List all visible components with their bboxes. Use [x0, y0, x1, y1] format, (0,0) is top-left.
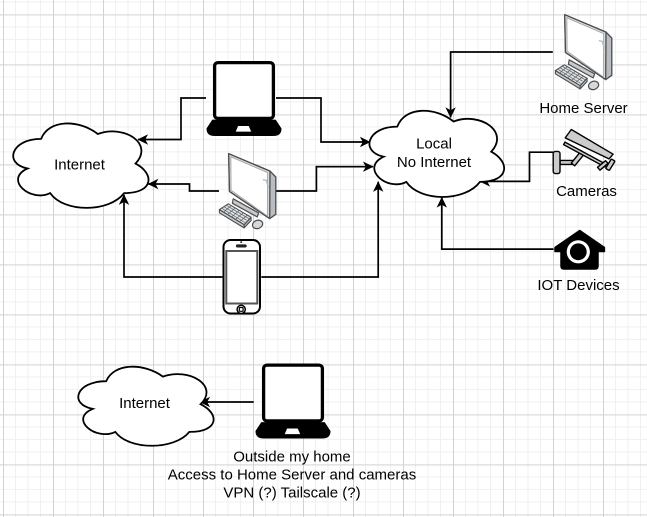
svg-text:Internet: Internet [54, 157, 106, 174]
svg-text:Internet: Internet [119, 395, 171, 412]
svg-text:IOT Devices: IOT Devices [537, 277, 619, 294]
svg-text:Local: Local [416, 136, 452, 153]
svg-text:Cameras: Cameras [556, 183, 617, 200]
svg-text:Home Server: Home Server [539, 100, 627, 117]
svg-text:Outside my home: Outside my home [233, 449, 351, 466]
svg-text:No Internet: No Internet [397, 154, 472, 171]
svg-text:Access to Home Server and came: Access to Home Server and cameras [168, 467, 416, 484]
svg-text:VPN (?) Tailscale (?): VPN (?) Tailscale (?) [223, 485, 360, 502]
